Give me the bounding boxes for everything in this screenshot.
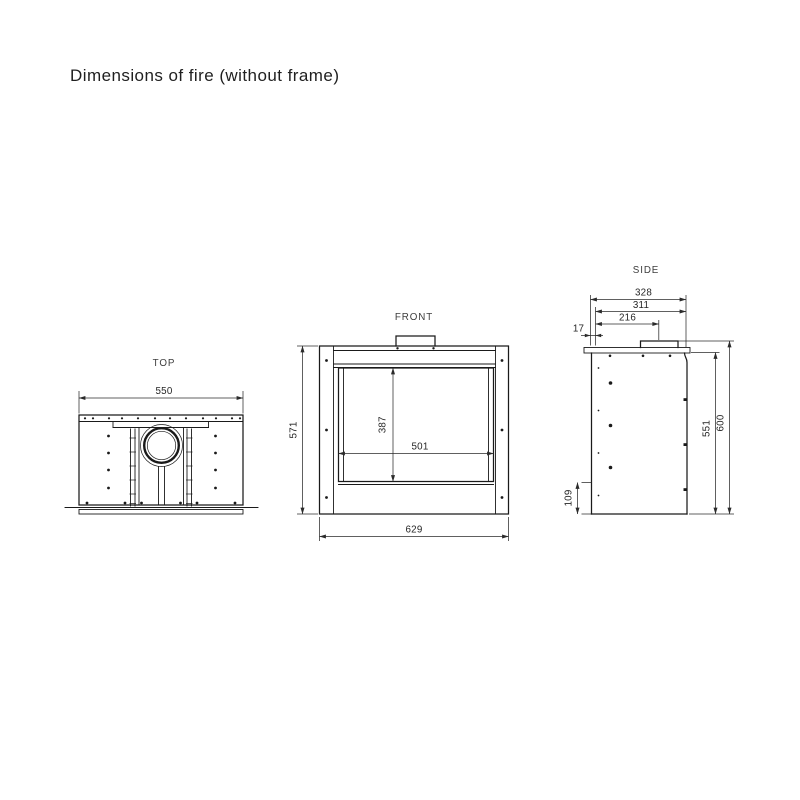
dim-side-body-height: 551: [689, 353, 734, 515]
dim-top-width: 550: [79, 386, 243, 414]
svg-text:571: 571: [289, 422, 300, 439]
svg-text:328: 328: [635, 288, 652, 299]
front-glass-window: [339, 368, 494, 482]
dim-front-width: 629: [320, 517, 509, 541]
dim-front-height: 571: [289, 346, 319, 514]
front-flange-dots: [325, 359, 503, 499]
top-rivet-row: [84, 417, 241, 419]
svg-text:600: 600: [716, 414, 727, 431]
svg-text:550: 550: [156, 386, 173, 397]
side-top-lip: [584, 348, 690, 354]
top-left-rail: [130, 428, 140, 507]
top-view: TOP 550: [65, 358, 258, 514]
dim-side-depth-overall: 328: [591, 288, 687, 348]
dim-side-flue-centre: 216: [596, 313, 659, 341]
front-view: FRONT 387: [289, 312, 509, 541]
svg-text:216: 216: [619, 313, 636, 324]
dim-front-glass-width: 501: [339, 442, 494, 454]
front-body-outline: [320, 346, 509, 514]
side-view-label: SIDE: [633, 265, 659, 276]
flue-collar-front: [396, 336, 435, 346]
flue-collar-side: [641, 341, 679, 348]
svg-text:629: 629: [406, 525, 423, 536]
top-right-rail: [184, 428, 193, 507]
top-view-label: TOP: [153, 358, 176, 369]
svg-text:109: 109: [564, 490, 575, 507]
front-view-label: FRONT: [395, 312, 433, 323]
svg-text:311: 311: [633, 300, 649, 311]
top-fixing-dots: [86, 435, 237, 505]
dim-front-glass-height: 387: [378, 368, 394, 482]
flue-circle: [141, 425, 183, 467]
side-view: SIDE 328 311 216 17: [564, 265, 735, 514]
dim-side-front-lip: 17: [573, 324, 603, 338]
side-fixing-dots: [598, 355, 688, 497]
drawing-page: Dimensions of fire (without frame) TOP 5…: [0, 0, 800, 800]
svg-text:387: 387: [378, 416, 389, 433]
side-body-outline: [592, 353, 688, 514]
svg-text:501: 501: [412, 442, 429, 453]
svg-text:17: 17: [573, 324, 584, 335]
svg-text:551: 551: [702, 420, 713, 437]
top-base-strip: [79, 510, 243, 515]
dim-side-base-height: 109: [564, 483, 592, 515]
dim-side-depth-body: 311: [596, 300, 687, 346]
technical-drawing: TOP 550: [0, 0, 800, 800]
